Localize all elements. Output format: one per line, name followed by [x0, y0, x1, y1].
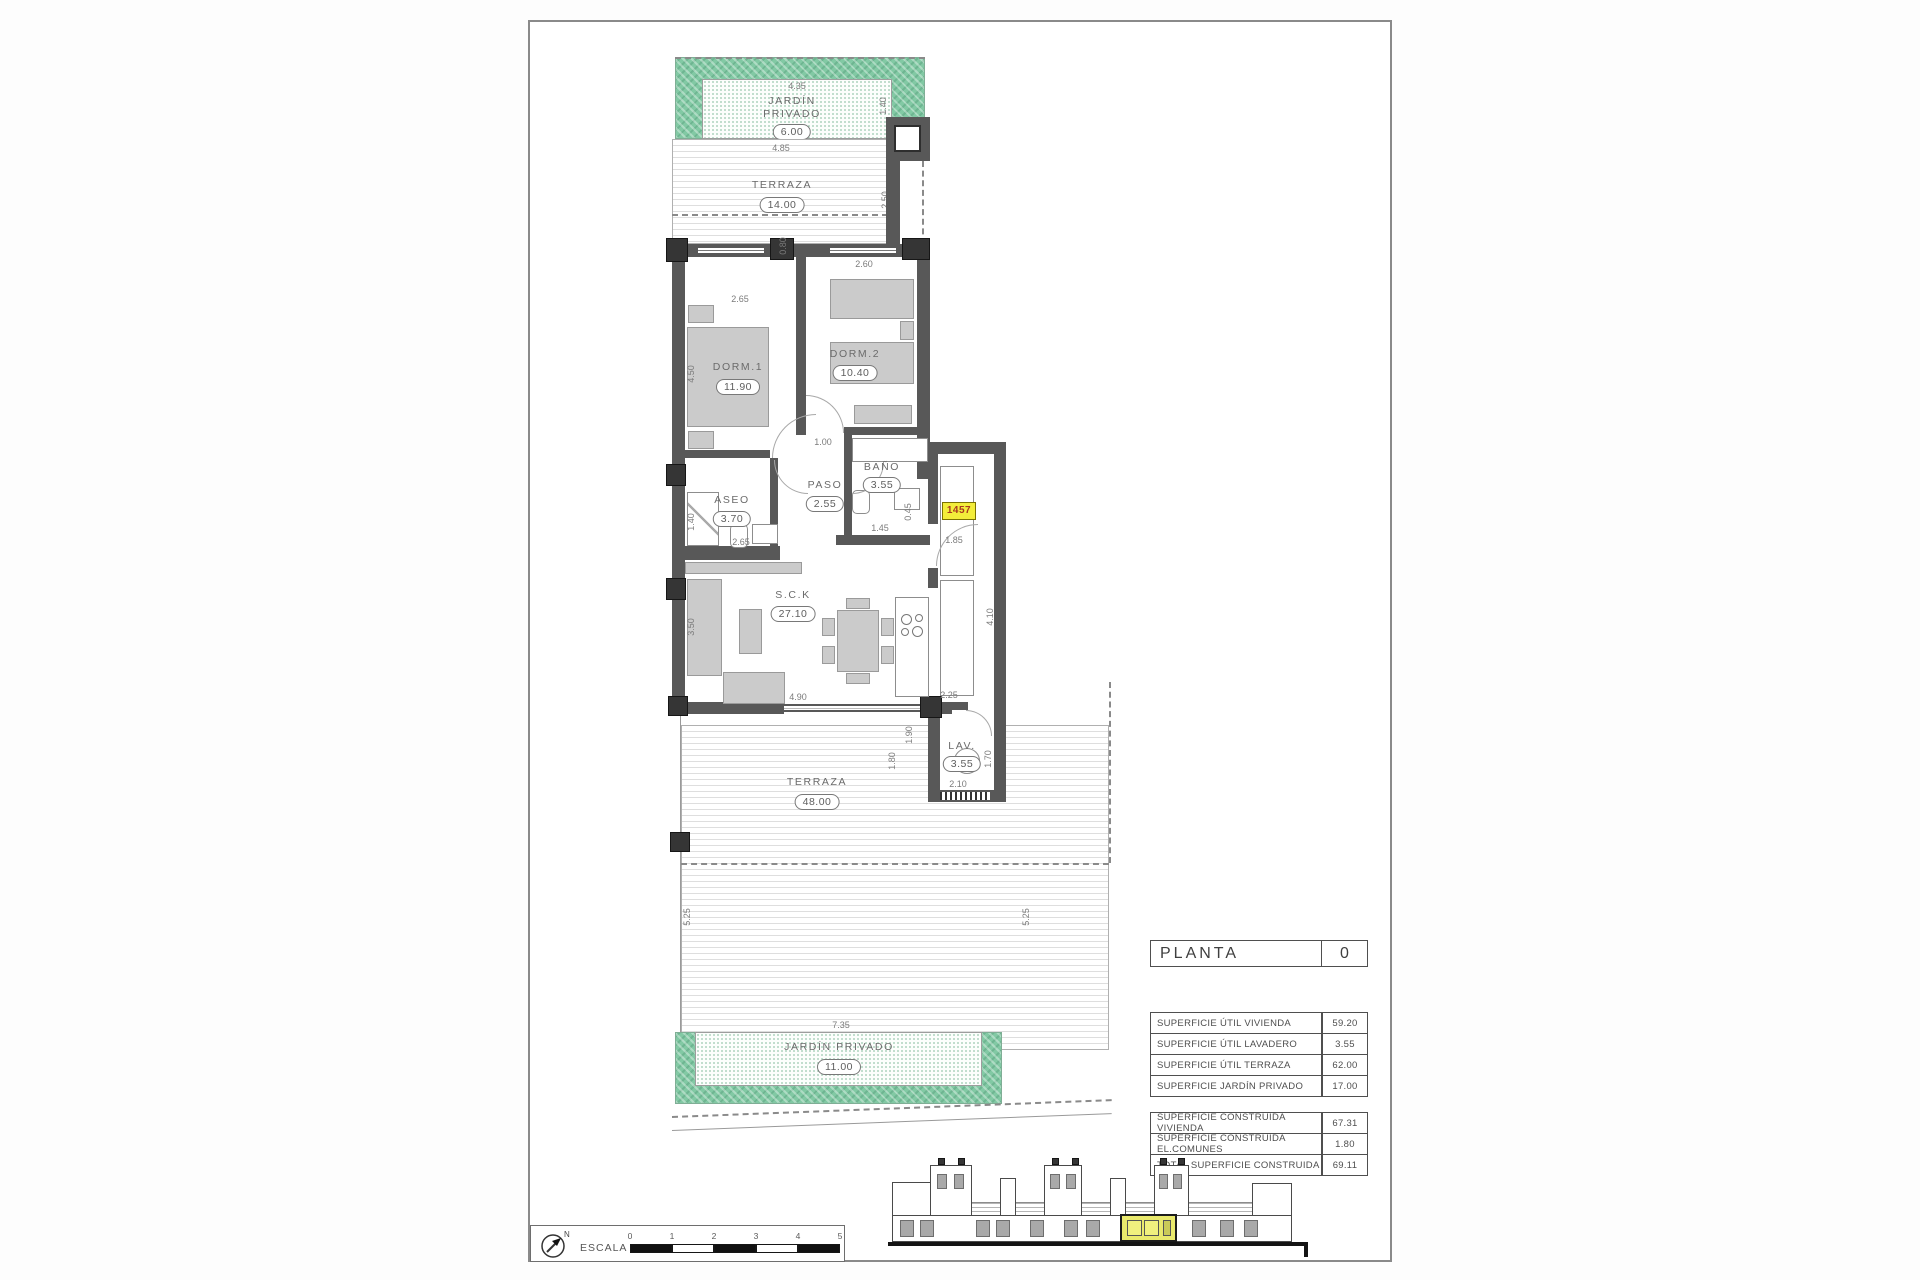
room-label-terraza-top: TERRAZA	[752, 179, 812, 191]
table-value: 62.00	[1322, 1054, 1368, 1076]
table-value: 67.31	[1322, 1112, 1368, 1134]
dim-sck-width: 4.90	[789, 692, 807, 702]
column	[666, 578, 686, 600]
elevation-window	[900, 1220, 914, 1237]
room-label-aseo: ASEO	[714, 494, 750, 506]
elevation-window	[954, 1174, 964, 1189]
dorm1-nightstand	[688, 305, 714, 323]
elevation-window	[1192, 1220, 1206, 1237]
elevation-tower	[930, 1165, 972, 1216]
scale-tick: 0	[628, 1231, 633, 1241]
bano-bottom-wall	[836, 535, 930, 545]
elevation-wing	[1252, 1183, 1292, 1216]
elevation-chimney	[1052, 1158, 1059, 1165]
scale-segment	[798, 1244, 840, 1253]
scale-segment	[756, 1244, 798, 1253]
dim-wall-offset: 0.80	[778, 237, 788, 255]
dining-table	[837, 610, 879, 672]
dim-terrace-step: 1.80	[887, 752, 897, 770]
dim-top-garden-depth: 1.40	[878, 97, 888, 115]
elevation-window	[1086, 1220, 1100, 1237]
dim-lav-width: 2.10	[949, 779, 967, 789]
entry-jamb-wall-low	[928, 568, 938, 588]
table-label: SUPERFICIE JARDÍN PRIVADO	[1150, 1075, 1322, 1097]
elevation-window	[1173, 1174, 1182, 1189]
dorm1-nightstand	[688, 431, 714, 449]
planta-value: 0	[1322, 940, 1368, 967]
area-box-paso: 2.55	[806, 496, 844, 512]
north-letter: N	[564, 1230, 570, 1239]
room-label-terraza-bottom: TERRAZA	[787, 776, 847, 788]
dim-terrace-depth-right: 5.25	[1021, 908, 1031, 926]
column	[666, 464, 686, 486]
room-label-jardin-top-1: JARDÍN	[768, 95, 816, 107]
table-label: SUPERFICIE CONSTRUIDA EL.COMUNES	[1150, 1133, 1322, 1155]
dining-chair	[846, 598, 870, 609]
dining-chair	[881, 618, 894, 636]
elevation-chimney	[958, 1158, 965, 1165]
table-value: 69.11	[1322, 1154, 1368, 1176]
table-label: SUPERFICIE CONSTRUIDA VIVIENDA	[1150, 1112, 1322, 1134]
scale-segment	[630, 1244, 672, 1253]
north-arrow-icon: N	[538, 1228, 572, 1260]
dining-chair	[822, 618, 835, 636]
dorm2-desk	[854, 405, 912, 424]
dim-bano-depth: 0.45	[903, 503, 913, 521]
table-value: 3.55	[1322, 1033, 1368, 1055]
dim-kitchen-width: 2.25	[940, 690, 958, 700]
hob-burner	[901, 614, 912, 625]
dim-entry-width: 1.85	[945, 535, 963, 545]
room-label-lav: LAV.	[948, 740, 975, 752]
area-box-dorm1: 11.90	[716, 379, 760, 395]
elevation-chimney	[1072, 1158, 1079, 1165]
table-value: 1.80	[1322, 1133, 1368, 1155]
wing-right-wall	[994, 442, 1006, 802]
column	[666, 238, 688, 262]
lav-top-wall	[940, 702, 968, 710]
elevation-wing	[892, 1182, 932, 1216]
coffee-table	[739, 609, 762, 654]
room-label-sck: S.C.K	[775, 589, 810, 601]
shaft-dashed-line	[922, 161, 924, 244]
elevation-window	[1050, 1174, 1060, 1189]
table-row: SUPERFICIE JARDÍN PRIVADO 17.00	[1150, 1075, 1368, 1097]
garden-top-boundary	[675, 57, 925, 59]
elevation-window	[976, 1220, 990, 1237]
elevation-window	[1066, 1174, 1076, 1189]
elevation-window	[1064, 1220, 1078, 1237]
scale-tick: 1	[670, 1231, 675, 1241]
dorm2-window	[830, 246, 896, 255]
elevation-window	[1244, 1220, 1258, 1237]
elevation-window	[937, 1174, 947, 1189]
dim-top-terrace-width: 4.85	[772, 143, 790, 153]
dorm2-side-table	[900, 321, 914, 340]
plan-sheet: 4.35 JARDÍN PRIVADO 6.00 1.40 4.85 TERRA…	[528, 20, 1392, 1262]
elevation-tower	[1154, 1165, 1189, 1216]
hob-burner	[901, 628, 909, 636]
elevation-stack	[1110, 1178, 1126, 1216]
aseo-sink	[752, 524, 778, 544]
elevation-ground-line	[888, 1242, 1308, 1246]
highlighted-unit-window	[1127, 1220, 1142, 1236]
scale-segment	[714, 1244, 756, 1253]
room-label-jardin-top-2: PRIVADO	[763, 108, 821, 120]
dim-paso-width: 1.00	[814, 437, 832, 447]
room-label-jardin-bottom: JARDÍN PRIVADO	[784, 1041, 894, 1053]
elevation-window	[920, 1220, 934, 1237]
elevation-stack	[1000, 1178, 1016, 1216]
area-box-terraza-top: 14.00	[760, 197, 805, 213]
area-box-terraza-bottom: 48.00	[795, 794, 840, 810]
table-label: SUPERFICIE ÚTIL TERRAZA	[1150, 1054, 1322, 1076]
elevation-chimney	[1178, 1158, 1185, 1165]
aseo-bottom-wall	[685, 546, 780, 560]
aseo-top-wall	[685, 450, 770, 458]
scale-tick: 3	[754, 1231, 759, 1241]
sofa-horizontal	[723, 672, 785, 704]
kitchen-tall-units	[940, 580, 974, 696]
area-box-sck: 27.10	[771, 606, 816, 622]
table-row: SUPERFICIE CONSTRUIDA VIVIENDA 67.31	[1150, 1112, 1368, 1134]
dim-dorm2-width: 2.60	[855, 259, 873, 269]
sck-slider-window	[784, 704, 922, 712]
dim-kitchen-depth: 4.10	[985, 608, 995, 626]
dim-aseo-width: 2.65	[732, 537, 750, 547]
dorm-divider-wall	[796, 257, 806, 435]
hob-burner	[915, 614, 923, 622]
terrace-covered-edge-v	[1109, 682, 1111, 863]
dining-chair	[846, 673, 870, 684]
dorm2-bed	[830, 279, 914, 319]
dorm1-bed	[687, 327, 769, 427]
room-label-dorm1: DORM.1	[713, 361, 763, 373]
lav-vent-grille	[940, 792, 990, 800]
dim-lav-depth: 1.70	[983, 750, 993, 768]
dim-top-garden-width: 4.35	[788, 81, 806, 91]
highlighted-unit-window	[1163, 1220, 1171, 1236]
room-label-bano: BAÑO	[864, 461, 900, 473]
table-row: SUPERFICIE ÚTIL LAVADERO 3.55	[1150, 1033, 1368, 1055]
area-box-aseo: 3.70	[713, 511, 751, 527]
elevation-ground-step	[1304, 1242, 1308, 1257]
highlighted-unit-window	[1144, 1220, 1159, 1236]
shaft-opening	[894, 125, 921, 152]
column	[902, 238, 930, 260]
area-box-lav: 3.55	[943, 756, 981, 772]
dorm1-window	[698, 246, 764, 255]
table-label: SUPERFICIE ÚTIL LAVADERO	[1150, 1033, 1322, 1055]
table-row: SUPERFICIE CONSTRUIDA EL.COMUNES 1.80	[1150, 1133, 1368, 1155]
table-row: SUPERFICIE ÚTIL TERRAZA 62.00	[1150, 1054, 1368, 1076]
planta-title-row: PLANTA 0	[1150, 940, 1368, 967]
dining-chair	[881, 646, 894, 664]
terrace-left-edge	[680, 714, 681, 1050]
terrace-covered-edge-h	[681, 863, 1109, 865]
dim-aseo-depth: 1.40	[686, 513, 696, 531]
elevation-chimney	[938, 1158, 945, 1165]
scale-segment	[672, 1244, 714, 1253]
column	[668, 696, 688, 716]
dim-dorm1-depth: 4.50	[686, 365, 696, 383]
table-value: 17.00	[1322, 1075, 1368, 1097]
elevation-window	[1220, 1220, 1234, 1237]
scale-tick: 5	[838, 1231, 843, 1241]
terrace-bottom-deck	[681, 725, 1109, 1050]
entry-jamb-wall	[928, 454, 938, 524]
table-value: 59.20	[1322, 1012, 1368, 1034]
kitchen-counter	[895, 597, 929, 697]
column	[920, 696, 942, 718]
dim-dorm1-width: 2.65	[731, 294, 749, 304]
terrace-top-deck	[672, 139, 888, 244]
elevation-tower	[1044, 1165, 1082, 1216]
elevation-window	[1030, 1220, 1044, 1237]
dim-sck-depth: 3.50	[686, 618, 696, 636]
area-box-bano: 3.55	[863, 477, 901, 493]
scale-tick: 2	[712, 1231, 717, 1241]
dorm2-bottom-wall	[844, 427, 930, 435]
area-box-jardin-bottom: 11.00	[817, 1059, 861, 1075]
area-box-dorm2: 10.40	[833, 365, 878, 381]
planta-label: PLANTA	[1150, 940, 1322, 967]
plot-boundary-line	[672, 1113, 1112, 1131]
room-label-dorm2: DORM.2	[830, 348, 880, 360]
area-box-jardin-top: 6.00	[773, 124, 811, 140]
dining-chair	[822, 646, 835, 664]
room-label-paso: PASO	[808, 479, 843, 491]
hob-burner	[912, 626, 923, 637]
dim-terrace-step2: 1.90	[904, 726, 914, 744]
bano-bathtub	[852, 438, 928, 462]
scale-tick: 4	[796, 1231, 801, 1241]
column	[670, 832, 690, 852]
unit-number-tag: 1457	[942, 502, 976, 520]
dim-bottom-garden-width: 7.35	[832, 1020, 850, 1030]
terrace-top-covered-line	[672, 214, 888, 216]
elevation-window	[996, 1220, 1010, 1237]
bano-left-wall	[844, 427, 852, 535]
scale-label: ESCALA :	[580, 1242, 635, 1254]
dim-terrace-depth-left: 5.25	[682, 908, 692, 926]
elevation-window	[1159, 1174, 1168, 1189]
shaft-side-wall	[886, 161, 900, 244]
hall-wardrobe	[685, 562, 802, 574]
table-label: SUPERFICIE ÚTIL VIVIENDA	[1150, 1012, 1322, 1034]
table-row: SUPERFICIE ÚTIL VIVIENDA 59.20	[1150, 1012, 1368, 1034]
dim-bano-width: 1.45	[871, 523, 889, 533]
elevation-chimney	[1160, 1158, 1167, 1165]
drawing-canvas: 4.35 JARDÍN PRIVADO 6.00 1.40 4.85 TERRA…	[0, 0, 1920, 1280]
